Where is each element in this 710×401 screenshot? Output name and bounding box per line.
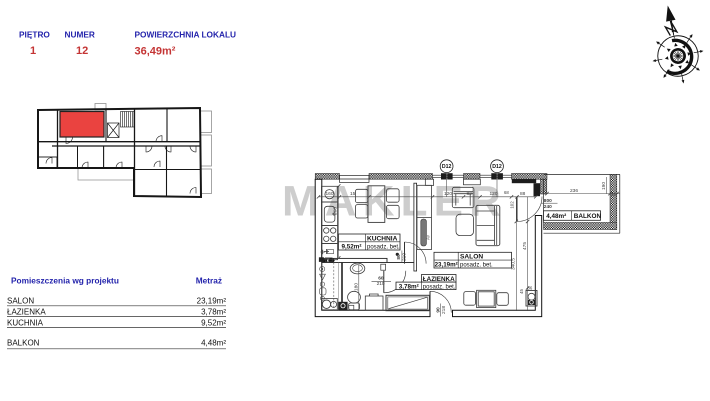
svg-text:Metraż: Metraż [196, 276, 222, 286]
svg-text:475: 475 [522, 242, 528, 250]
svg-text:1: 1 [30, 45, 36, 57]
svg-text:80: 80 [396, 254, 402, 260]
svg-text:60: 60 [378, 276, 384, 282]
svg-text:180: 180 [353, 283, 359, 291]
svg-text:102: 102 [510, 201, 515, 209]
svg-text:ŁAZIENKA: ŁAZIENKA [7, 308, 46, 317]
svg-text:23,19m²: 23,19m² [435, 262, 458, 269]
svg-text:4,48m²: 4,48m² [201, 339, 226, 348]
svg-text:160: 160 [326, 191, 334, 197]
svg-text:Pomieszczenia wg projektu: Pomieszczenia wg projektu [11, 276, 119, 286]
svg-text:9,52m²: 9,52m² [201, 319, 226, 328]
svg-text:PIĘTRO: PIĘTRO [19, 30, 50, 40]
svg-text:190: 190 [601, 182, 607, 190]
svg-text:BALKON: BALKON [574, 213, 602, 220]
svg-text:210: 210 [402, 253, 408, 261]
svg-text:D12: D12 [442, 164, 452, 170]
svg-text:posadz. bet.: posadz. bet. [460, 263, 493, 269]
svg-text:SALON: SALON [7, 297, 34, 306]
svg-text:45: 45 [519, 289, 524, 294]
svg-text:120: 120 [444, 191, 452, 197]
svg-text:3,78m²: 3,78m² [399, 284, 419, 291]
svg-text:NUMER: NUMER [65, 30, 95, 40]
svg-text:36: 36 [528, 285, 533, 290]
svg-text:88: 88 [520, 191, 526, 197]
svg-text:210: 210 [377, 281, 385, 287]
svg-text:POWIERZCHNIA LOKALU: POWIERZCHNIA LOKALU [135, 30, 237, 40]
svg-text:218: 218 [441, 306, 447, 314]
svg-text:800: 800 [544, 198, 552, 204]
svg-text:268: 268 [333, 207, 339, 215]
svg-text:90: 90 [435, 307, 441, 313]
svg-text:23,19m²: 23,19m² [197, 297, 227, 306]
svg-text:ŁAZIENKA: ŁAZIENKA [423, 276, 455, 283]
svg-text:120: 120 [490, 191, 498, 197]
svg-text:posadz. bet.: posadz. bet. [423, 285, 456, 291]
svg-text:68: 68 [504, 190, 509, 195]
svg-text:9,52m²: 9,52m² [342, 244, 362, 251]
svg-text:36,49m²: 36,49m² [135, 46, 176, 58]
svg-text:3,78m²: 3,78m² [201, 308, 226, 317]
svg-text:Av: Av [425, 234, 430, 240]
svg-text:4,48m²: 4,48m² [546, 213, 566, 220]
svg-text:posadz. bet.: posadz. bet. [367, 245, 400, 251]
svg-text:15: 15 [350, 191, 356, 197]
svg-text:236: 236 [570, 188, 578, 194]
svg-text:KUCHNIA: KUCHNIA [7, 319, 44, 328]
svg-text:KUCHNIA: KUCHNIA [367, 235, 398, 242]
svg-text:240: 240 [544, 204, 552, 210]
svg-text:12: 12 [76, 45, 88, 57]
svg-text:82: 82 [467, 191, 473, 197]
svg-text:44: 44 [611, 192, 616, 197]
svg-text:SALON: SALON [460, 254, 483, 261]
svg-text:D12: D12 [492, 164, 502, 170]
svg-text:BALKON: BALKON [7, 339, 40, 348]
